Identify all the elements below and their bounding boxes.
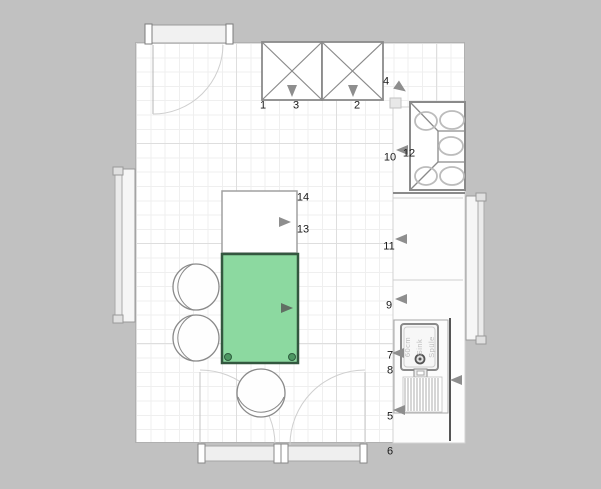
item-number-label: 13 xyxy=(297,225,309,236)
plan-drawing xyxy=(0,0,601,489)
orientation-arrow-icon[interactable] xyxy=(281,303,293,313)
window-right[interactable] xyxy=(466,193,486,344)
orientation-arrow-icon xyxy=(287,85,297,97)
orientation-arrow-icon xyxy=(395,294,407,304)
orientation-arrow-icon xyxy=(393,405,405,415)
item-number-label: 1 xyxy=(260,101,266,112)
chair-3[interactable] xyxy=(237,369,285,417)
item-number-label: 12 xyxy=(403,149,415,160)
item-number-label: 14 xyxy=(297,193,309,204)
orientation-arrow-icon xyxy=(395,234,407,244)
sink-label-line: Sink xyxy=(414,326,426,368)
sink-label: 60cm Sink Spüle xyxy=(402,326,438,368)
chair-2[interactable] xyxy=(173,315,219,361)
orientation-arrow-icon xyxy=(392,348,404,358)
sink-label-line: Spüle xyxy=(426,326,438,368)
item-number-label: 9 xyxy=(386,301,392,312)
item-number-label: 8 xyxy=(387,366,393,377)
orientation-arrow-icon xyxy=(348,85,358,97)
item-number-label: 5 xyxy=(387,412,393,423)
sink-label-line: 60cm xyxy=(402,326,414,368)
item-number-label: 4 xyxy=(383,77,389,88)
orientation-arrow-icon xyxy=(279,217,291,227)
item-number-label: 2 xyxy=(354,101,360,112)
window-left[interactable] xyxy=(113,167,135,323)
selection-handle[interactable] xyxy=(225,354,232,361)
item-number-label: 3 xyxy=(293,101,299,112)
selection-handle[interactable] xyxy=(289,354,296,361)
drainer-ridges xyxy=(403,377,442,412)
chair-1[interactable] xyxy=(173,264,219,310)
orientation-arrow-icon xyxy=(450,375,462,385)
item-number-label: 7 xyxy=(387,351,393,362)
door-top[interactable] xyxy=(145,24,233,114)
item-number-label: 10 xyxy=(384,153,396,164)
stove[interactable] xyxy=(410,102,465,190)
item-number-label: 11 xyxy=(383,242,394,253)
item-number-label: 6 xyxy=(387,447,393,458)
wall-stub xyxy=(390,98,401,108)
floorplan-canvas[interactable]: 60cm Sink Spüle 1234567891011121314 xyxy=(0,0,601,489)
